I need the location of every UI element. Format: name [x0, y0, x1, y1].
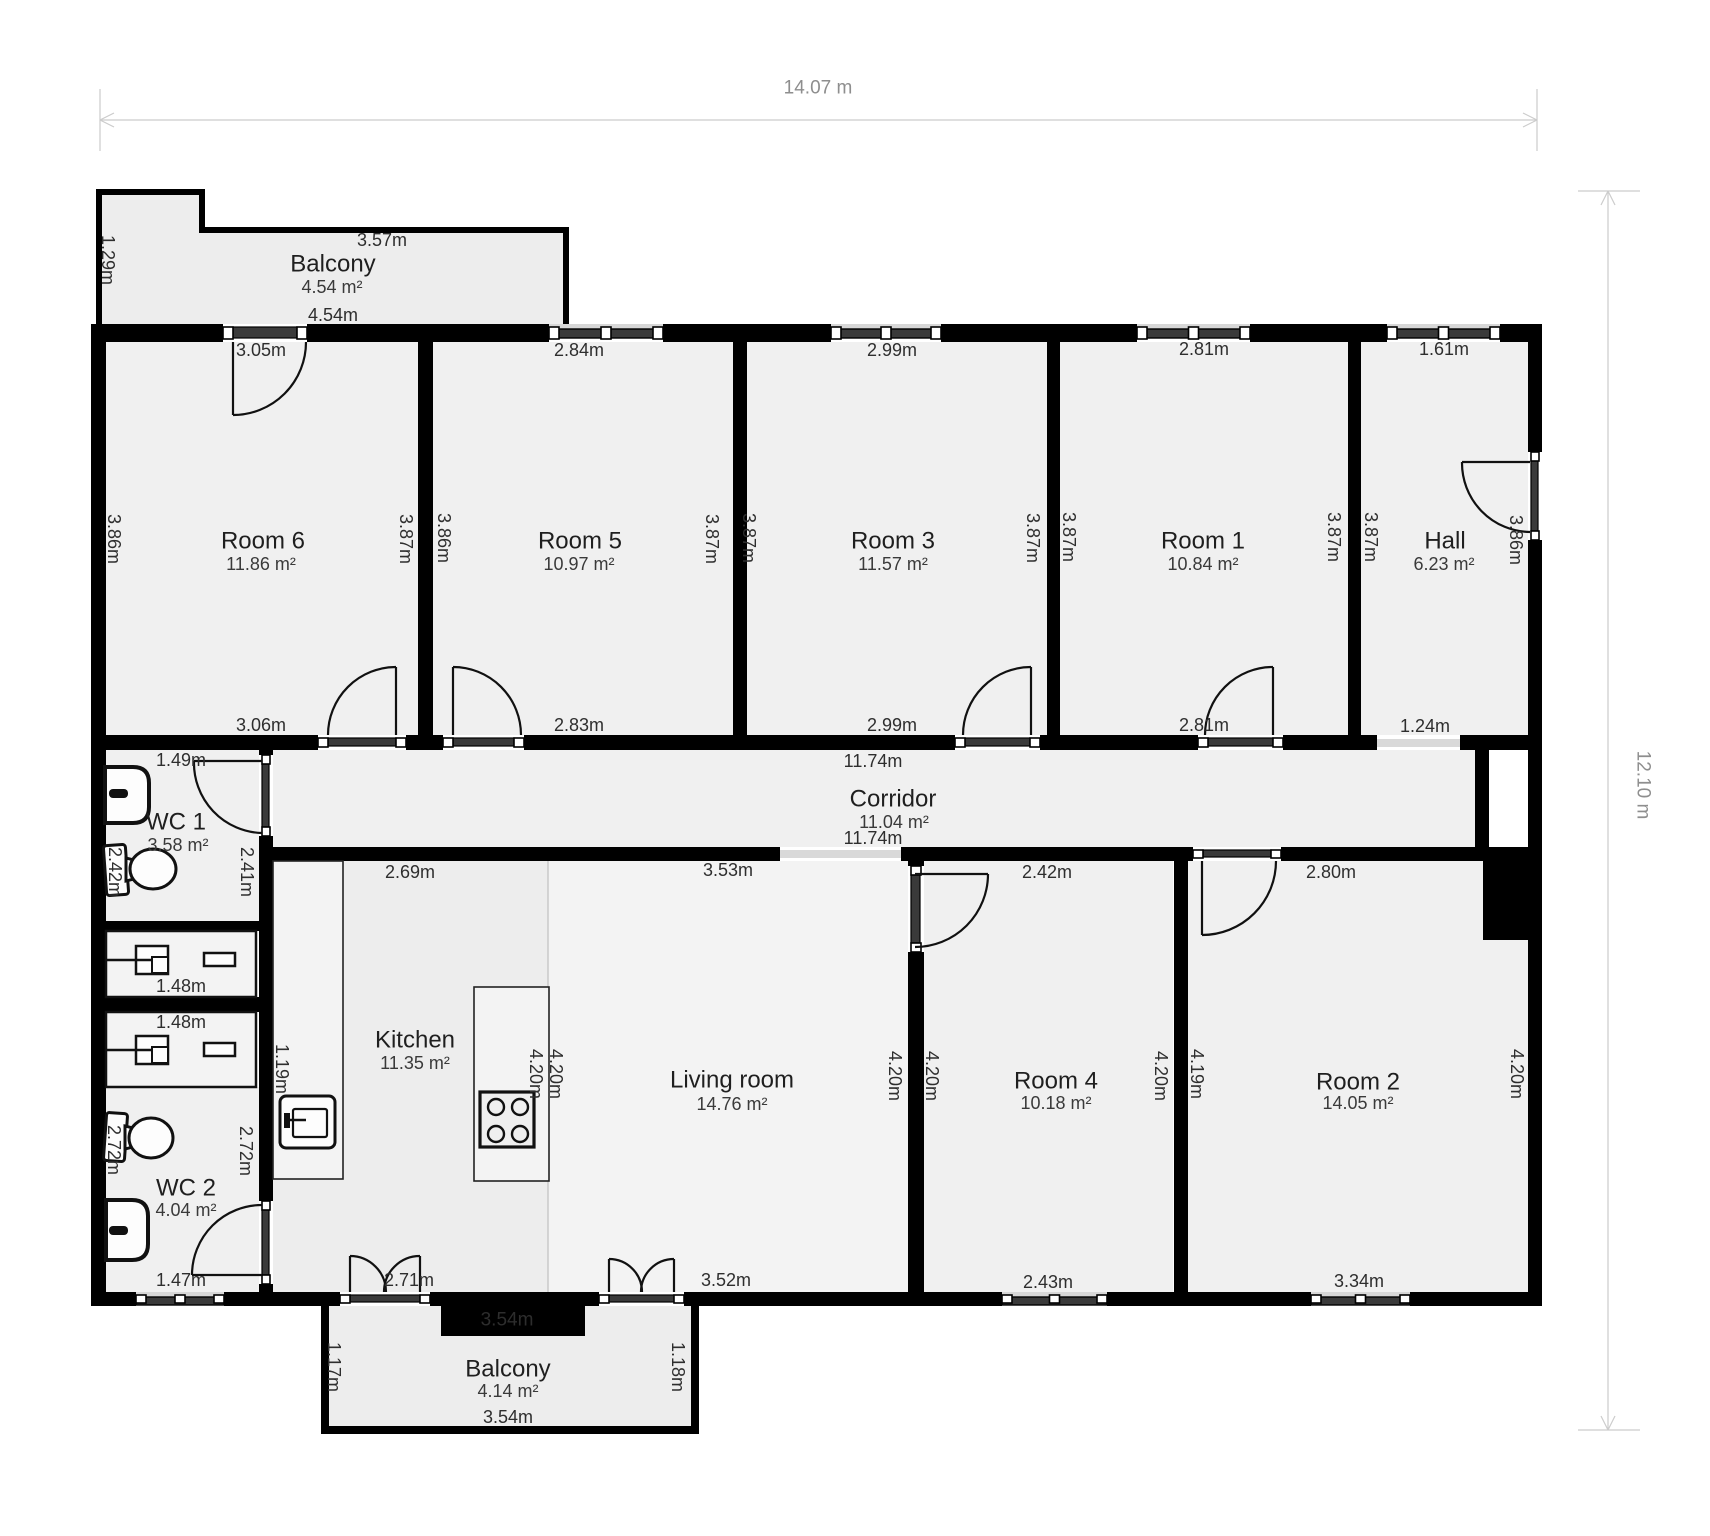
svg-text:1.19m: 1.19m [272, 1044, 292, 1094]
svg-text:4.20m: 4.20m [1507, 1049, 1527, 1099]
svg-text:Room 1: Room 1 [1161, 528, 1245, 555]
svg-text:2.42m: 2.42m [105, 847, 125, 897]
svg-text:Room 4: Room 4 [1014, 1068, 1098, 1095]
svg-text:2.81m: 2.81m [1179, 339, 1229, 359]
svg-text:4.20m: 4.20m [1151, 1051, 1171, 1101]
svg-text:1.49m: 1.49m [156, 750, 206, 770]
svg-text:Balcony: Balcony [465, 1356, 550, 1383]
svg-text:Room 2: Room 2 [1316, 1069, 1400, 1096]
svg-text:2.72m: 2.72m [236, 1126, 256, 1176]
svg-text:4.04 m²: 4.04 m² [155, 1200, 216, 1220]
svg-text:2.72m: 2.72m [104, 1125, 124, 1175]
svg-text:4.20m: 4.20m [885, 1051, 905, 1101]
svg-text:4.20m: 4.20m [922, 1051, 942, 1101]
svg-text:4.54 m²: 4.54 m² [301, 277, 362, 297]
svg-text:11.57 m²: 11.57 m² [858, 554, 928, 574]
svg-text:3.54m: 3.54m [483, 1407, 533, 1427]
svg-text:14.76 m²: 14.76 m² [696, 1094, 767, 1114]
svg-text:Room 6: Room 6 [221, 528, 305, 555]
svg-text:1.48m: 1.48m [156, 1012, 206, 1032]
svg-text:Kitchen: Kitchen [375, 1027, 455, 1054]
svg-text:1.18m: 1.18m [668, 1342, 688, 1392]
svg-text:2.69m: 2.69m [385, 862, 435, 882]
svg-text:3.87m: 3.87m [1059, 512, 1079, 562]
svg-text:2.83m: 2.83m [554, 715, 604, 735]
svg-text:11.86 m²: 11.86 m² [226, 554, 296, 574]
svg-text:6.23 m²: 6.23 m² [1413, 554, 1474, 574]
svg-text:1.17m: 1.17m [324, 1342, 344, 1392]
svg-text:4.19m: 4.19m [1187, 1049, 1207, 1099]
svg-text:11.35 m²: 11.35 m² [380, 1053, 450, 1073]
svg-text:11.74m: 11.74m [844, 751, 903, 771]
svg-text:3.05m: 3.05m [236, 340, 286, 360]
svg-text:Hall: Hall [1424, 528, 1465, 555]
svg-text:Living room: Living room [670, 1067, 794, 1094]
svg-text:1.24m: 1.24m [1400, 716, 1450, 736]
svg-text:3.06m: 3.06m [236, 715, 286, 735]
svg-text:3.57m: 3.57m [357, 230, 407, 250]
svg-text:1.48m: 1.48m [156, 976, 206, 996]
svg-text:2.80m: 2.80m [1306, 862, 1356, 882]
svg-text:10.84 m²: 10.84 m² [1167, 554, 1238, 574]
svg-text:3.87m: 3.87m [1324, 512, 1344, 562]
svg-text:3.87m: 3.87m [702, 514, 722, 564]
svg-text:4.20m: 4.20m [546, 1049, 566, 1099]
svg-text:3.34m: 3.34m [1334, 1271, 1384, 1291]
svg-text:WC 2: WC 2 [156, 1175, 216, 1202]
svg-text:Balcony: Balcony [290, 251, 375, 278]
svg-text:1.29m: 1.29m [98, 235, 118, 285]
svg-text:4.20m: 4.20m [526, 1049, 546, 1099]
svg-text:1.47m: 1.47m [156, 1270, 206, 1290]
svg-text:2.81m: 2.81m [1179, 715, 1229, 735]
svg-text:2.99m: 2.99m [867, 340, 917, 360]
svg-text:3.86m: 3.86m [1506, 515, 1526, 565]
svg-text:3.54m: 3.54m [481, 1310, 534, 1331]
svg-text:2.43m: 2.43m [1023, 1272, 1073, 1292]
svg-text:3.87m: 3.87m [739, 513, 759, 563]
svg-text:12.10 m: 12.10 m [1633, 751, 1654, 820]
svg-text:2.84m: 2.84m [554, 340, 604, 360]
svg-text:3.53m: 3.53m [703, 860, 753, 880]
svg-text:3.52m: 3.52m [701, 1270, 751, 1290]
svg-text:3.87m: 3.87m [1361, 512, 1381, 562]
svg-text:2.99m: 2.99m [867, 715, 917, 735]
svg-text:11.74m: 11.74m [844, 828, 903, 848]
svg-text:3.87m: 3.87m [396, 514, 416, 564]
svg-text:WC 1: WC 1 [146, 809, 206, 836]
svg-text:14.07 m: 14.07 m [784, 78, 853, 99]
svg-text:10.97 m²: 10.97 m² [543, 554, 614, 574]
svg-text:3.86m: 3.86m [434, 513, 454, 563]
svg-text:3.87m: 3.87m [1023, 513, 1043, 563]
svg-text:4.54m: 4.54m [308, 305, 358, 325]
svg-text:3.58 m²: 3.58 m² [147, 835, 208, 855]
svg-text:2.41m: 2.41m [237, 847, 257, 897]
svg-text:4.14 m²: 4.14 m² [477, 1381, 538, 1401]
svg-text:10.18 m²: 10.18 m² [1020, 1093, 1091, 1113]
svg-text:1.61m: 1.61m [1419, 339, 1469, 359]
svg-text:3.86m: 3.86m [104, 514, 124, 564]
svg-text:Room 5: Room 5 [538, 528, 622, 555]
svg-text:2.71m: 2.71m [384, 1270, 434, 1290]
svg-text:14.05 m²: 14.05 m² [1322, 1093, 1393, 1113]
svg-text:2.42m: 2.42m [1022, 862, 1072, 882]
svg-text:Corridor: Corridor [850, 786, 937, 813]
svg-text:Room 3: Room 3 [851, 528, 935, 555]
